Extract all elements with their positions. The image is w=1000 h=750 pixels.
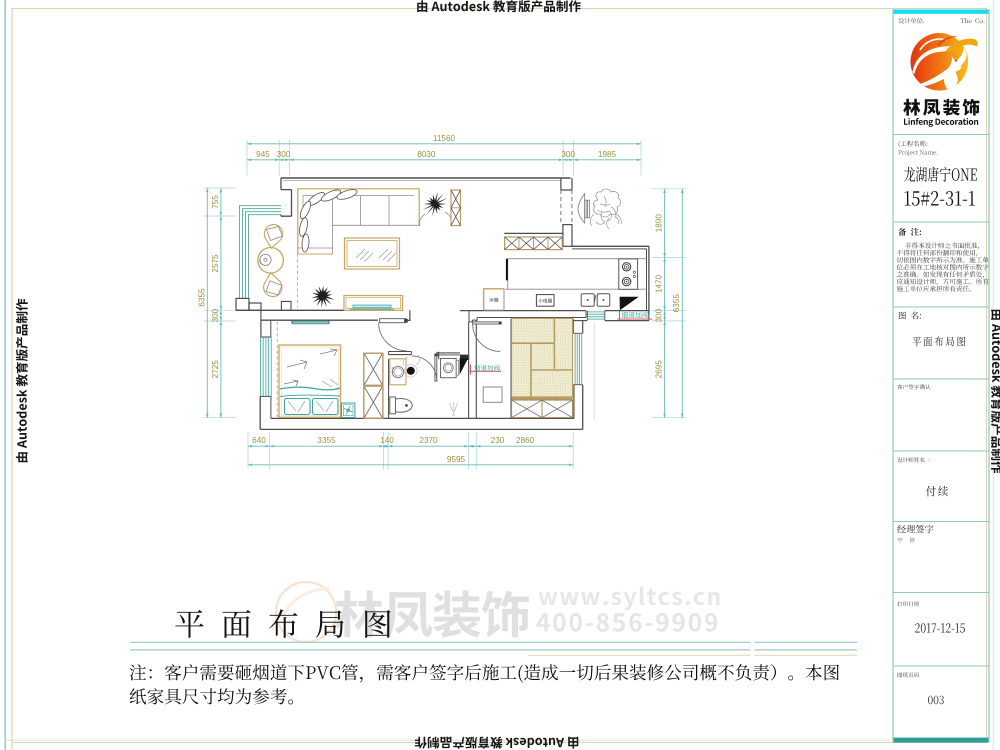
svg-text:11560: 11560 xyxy=(433,134,456,143)
svg-text:300: 300 xyxy=(561,150,575,159)
svg-text:1890: 1890 xyxy=(655,214,664,233)
svg-text:945: 945 xyxy=(256,150,270,159)
svg-text:300: 300 xyxy=(211,308,220,322)
svg-text:1470: 1470 xyxy=(655,274,664,293)
svg-text:9595: 9595 xyxy=(447,455,466,464)
svg-text:2695: 2695 xyxy=(655,360,664,379)
svg-text:2575: 2575 xyxy=(211,254,220,273)
svg-text:3355: 3355 xyxy=(317,436,336,445)
svg-text:2725: 2725 xyxy=(211,360,220,379)
svg-text:230: 230 xyxy=(491,436,505,445)
svg-text:2860: 2860 xyxy=(516,436,535,445)
svg-text:300: 300 xyxy=(277,150,291,159)
svg-text:8030: 8030 xyxy=(417,150,436,159)
svg-text:2370: 2370 xyxy=(419,436,438,445)
svg-text:140: 140 xyxy=(380,436,394,445)
svg-text:300: 300 xyxy=(655,308,664,322)
svg-text:755: 755 xyxy=(211,195,220,209)
svg-text:6355: 6355 xyxy=(198,288,207,307)
svg-text:1985: 1985 xyxy=(598,150,617,159)
svg-text:640: 640 xyxy=(252,436,266,445)
svg-text:6355: 6355 xyxy=(672,294,681,313)
